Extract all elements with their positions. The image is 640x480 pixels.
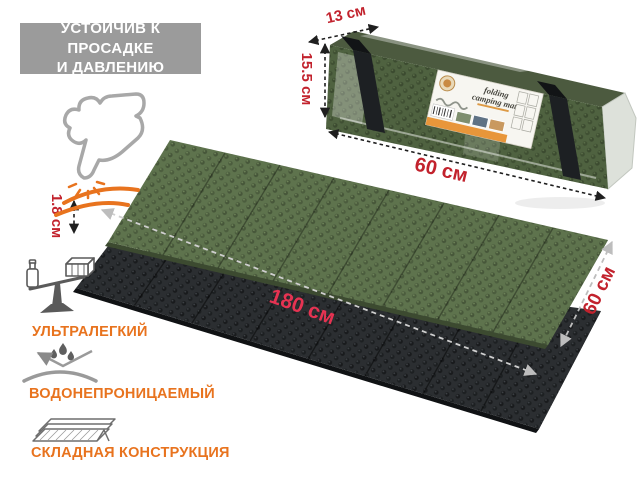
- water-repel-icon: [24, 343, 96, 381]
- scale-column: [52, 283, 62, 306]
- feature-label-ultralight: УЛЬТРАЛЕГКИЙ: [32, 324, 148, 340]
- water-drops: [51, 343, 74, 360]
- packaged-mat-photo: folding camping mat: [326, 31, 636, 209]
- badge-line-2: И ДАВЛЕНИЮ: [57, 58, 165, 78]
- bounce-arc-2: [56, 203, 128, 215]
- dim-package-length-label: 60 см: [413, 154, 470, 188]
- durability-badge: УСТОЙЧИВ К ПРОСАДКЕ И ДАВЛЕНИЮ: [20, 23, 201, 74]
- feature-label-waterproof: ВОДОНЕПРОНИЦАЕМЫЙ: [29, 386, 215, 402]
- mat-surface-arc: [24, 372, 96, 381]
- product-infographic: 1.8 см 180 см 60 см folding camp: [0, 0, 640, 480]
- package-wrap-end: [602, 93, 636, 189]
- badge-line-1: УСТОЙЧИВ К ПРОСАДКЕ: [20, 19, 201, 59]
- bounce-arc-1: [64, 189, 138, 203]
- accordion-fold-icon: [33, 419, 115, 441]
- feature-label-folding: СКЛАДНАЯ КОНСТРУКЦИЯ: [31, 445, 230, 461]
- folded-mat-box: [66, 258, 94, 276]
- package-shadow: [515, 197, 605, 209]
- dim-depth-label: 13 см: [324, 2, 367, 28]
- press-hand-icon: [56, 94, 144, 215]
- hand-outline: [65, 94, 144, 178]
- dim-height-label: 15.5 см: [298, 53, 315, 106]
- water-bottle: [27, 260, 38, 287]
